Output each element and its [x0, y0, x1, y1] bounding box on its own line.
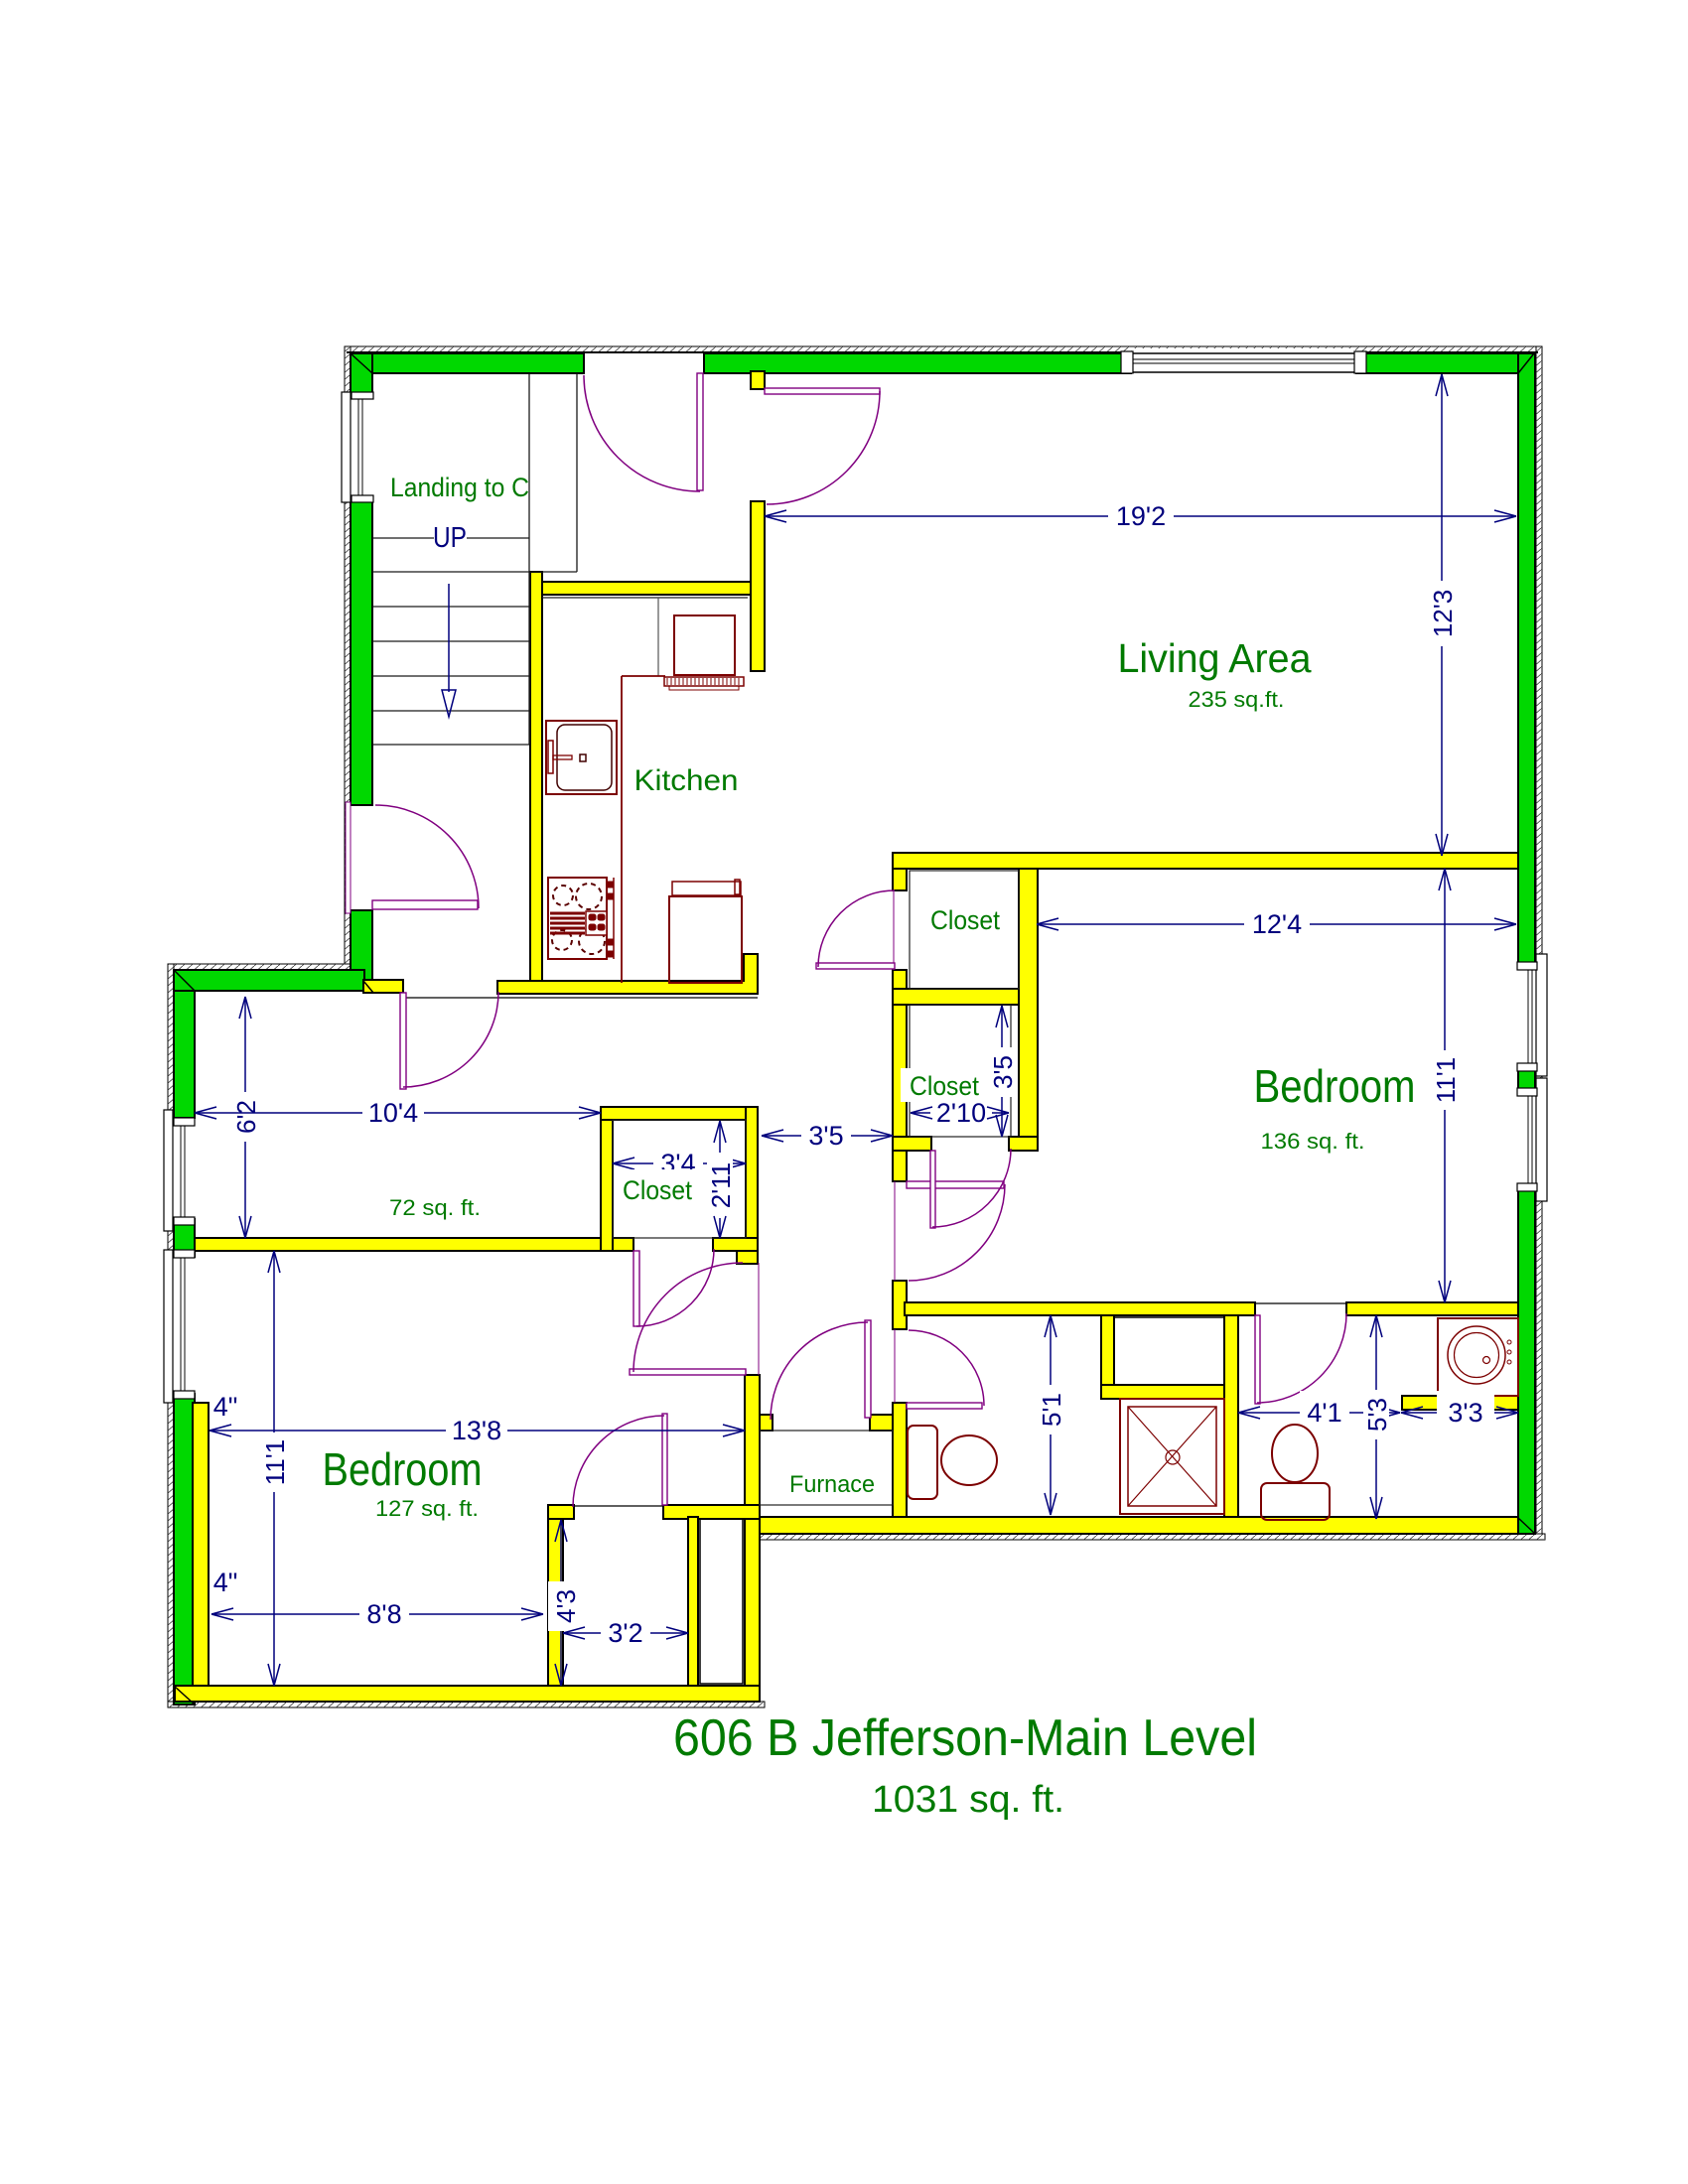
svg-text:Closet: Closet [930, 905, 1000, 935]
svg-text:11'1: 11'1 [1431, 1057, 1461, 1103]
svg-text:Closet: Closet [623, 1175, 692, 1205]
svg-text:3'3: 3'3 [1448, 1398, 1482, 1428]
svg-text:8'8: 8'8 [366, 1599, 401, 1629]
svg-text:3'5: 3'5 [988, 1055, 1018, 1089]
svg-text:5'1: 5'1 [1037, 1393, 1066, 1427]
svg-text:3'2: 3'2 [608, 1618, 642, 1648]
svg-text:Furnace: Furnace [789, 1471, 875, 1498]
svg-text:4'3: 4'3 [551, 1589, 581, 1623]
svg-text:235 sq.ft.: 235 sq.ft. [1189, 687, 1285, 712]
svg-text:11'1: 11'1 [260, 1439, 290, 1485]
svg-text:6'2: 6'2 [231, 1100, 261, 1134]
svg-text:72 sq. ft.: 72 sq. ft. [389, 1195, 481, 1220]
svg-text:127 sq. ft.: 127 sq. ft. [375, 1496, 479, 1521]
svg-text:13'8: 13'8 [452, 1416, 501, 1445]
svg-text:2'10: 2'10 [936, 1098, 986, 1128]
svg-text:3'5: 3'5 [808, 1121, 843, 1151]
svg-text:UP: UP [433, 522, 467, 554]
svg-text:4'1: 4'1 [1307, 1398, 1341, 1428]
svg-text:Bedroom: Bedroom [1254, 1060, 1416, 1112]
svg-text:Closet: Closet [910, 1071, 979, 1101]
svg-text:Living Area: Living Area [1118, 635, 1312, 681]
svg-text:Bedroom: Bedroom [323, 1443, 483, 1495]
svg-text:19'2: 19'2 [1116, 501, 1166, 531]
svg-text:10'4: 10'4 [368, 1098, 418, 1128]
svg-text:136 sq. ft.: 136 sq. ft. [1261, 1129, 1365, 1154]
svg-text:1031 sq. ft.: 1031 sq. ft. [872, 1779, 1064, 1821]
svg-text:12'4: 12'4 [1252, 909, 1302, 939]
svg-text:Landing to C: Landing to C [390, 473, 529, 502]
svg-text:606 B Jefferson-Main Level: 606 B Jefferson-Main Level [673, 1709, 1257, 1767]
svg-text:12'3: 12'3 [1428, 590, 1458, 637]
svg-text:4": 4" [213, 1568, 238, 1597]
svg-text:2'11: 2'11 [706, 1162, 736, 1208]
svg-text:Kitchen: Kitchen [634, 764, 739, 797]
svg-text:4": 4" [213, 1392, 238, 1422]
svg-text:5'3: 5'3 [1362, 1398, 1392, 1432]
